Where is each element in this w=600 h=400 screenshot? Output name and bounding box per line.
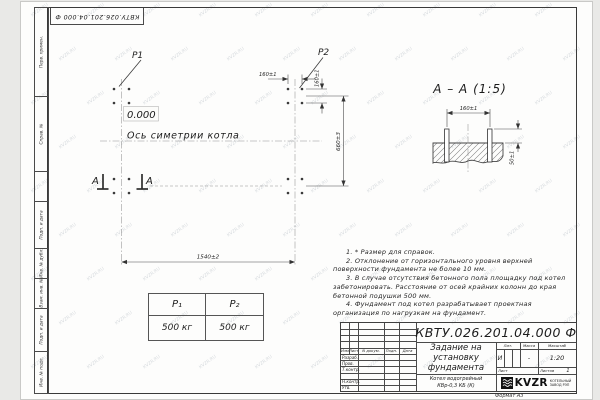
section-title: А – А (1:5) <box>432 82 507 96</box>
plan-view: P1 P2 160±1 160±1 660±3 1540±2 <box>91 48 349 266</box>
tb-row-tkontr: Т.контр. <box>342 367 358 373</box>
sheet-label: Лист <box>498 367 510 374</box>
lit-label: Лит. <box>496 342 520 349</box>
loads-col2-header: P₂ <box>206 294 263 316</box>
dim-section-spacing: 160±1 <box>460 106 478 112</box>
section-cut-marks: А А <box>91 174 153 189</box>
dim-plan-length: 1540±2 <box>197 255 220 261</box>
dim-plan-width: 660±3 <box>336 132 342 151</box>
drawing-title: Задание на установку фундамента <box>416 342 496 374</box>
loads-col1-header: P₁ <box>149 294 206 316</box>
manufacturer-org-text: КОТЕЛЬНЫЙ ЗАВОД РЭП <box>550 379 572 387</box>
load-point-1-label: P1 <box>132 51 143 61</box>
product-name: Котел водогрейный КВр-0,3 КБ (К) <box>416 374 496 391</box>
tb-line <box>341 329 416 330</box>
section-view: А – А (1:5) 160±1 <box>408 82 532 172</box>
mass-value: - <box>520 349 538 367</box>
loads-table: P₁ P₂ 500 кг 500 кг <box>148 293 264 341</box>
symmetry-axis-label: Ось симетрии котла <box>127 131 239 142</box>
scale-label: Масштаб <box>538 342 576 349</box>
dim-bolt-spacing-y: 160±1 <box>315 69 321 87</box>
tb-col-data: Дата <box>399 348 416 354</box>
dim-bolt-spacing-x: 160±1 <box>259 72 277 78</box>
tb-line <box>512 349 513 367</box>
format-label: Формат А3 <box>495 393 523 399</box>
tb-line <box>341 341 416 342</box>
dim-section-height: 50±1 <box>510 151 516 165</box>
tb-line <box>504 349 505 367</box>
load-point-2-label: P2 <box>318 48 329 58</box>
section-letter: А <box>145 176 153 187</box>
sheets-value: 1 <box>563 367 573 374</box>
anchor-bolt <box>445 129 449 162</box>
manufacturer-logo-text: KVZR <box>515 377 548 389</box>
tb-line <box>341 335 416 336</box>
note-2: 2. Отклонение от горизонтального уровня … <box>333 257 573 274</box>
tb-col-podp: Подп. <box>384 348 399 354</box>
drawing-page: KVZR.RUKVZR.RUKVZR.RUKVZR.RUKVZR.RUKVZR.… <box>0 0 600 400</box>
elevation-mark: 0.000 <box>127 110 156 121</box>
section-letter: А <box>91 176 99 187</box>
tb-col-izm: Изм. <box>341 348 349 354</box>
mass-label: Масса <box>520 342 538 349</box>
kvzr-logo-icon <box>501 377 513 389</box>
tb-line <box>384 323 385 391</box>
tb-col-doc: N докум. <box>358 348 384 354</box>
anchor-bolt <box>488 129 492 162</box>
title-block: Изм. Лист N докум. Подп. Дата Разраб. Пр… <box>340 322 577 392</box>
tb-row-utv: Утв. <box>342 385 358 391</box>
lit-value: И <box>496 349 504 367</box>
scale-value: 1:20 <box>538 349 576 367</box>
manufacturer-cell: KVZR КОТЕЛЬНЫЙ ЗАВОД РЭП <box>496 374 576 391</box>
note-4: 4. Фундамент под котел разрабатывает про… <box>333 300 573 317</box>
loads-col2-value: 500 кг <box>206 316 263 340</box>
notes-block: 1. * Размер для справок. 2. Отклонение о… <box>333 248 573 318</box>
tb-line <box>399 323 400 391</box>
note-1: 1. * Размер для справок. <box>333 248 573 257</box>
doc-number: КВТУ.026.201.04.000 Ф <box>416 323 576 342</box>
tb-col-list: Лист <box>349 348 358 354</box>
loads-col1-value: 500 кг <box>149 316 206 340</box>
note-3: 3. В случае отсутствия бетонного пола пл… <box>333 274 573 300</box>
sheets-label: Листов <box>540 367 556 374</box>
